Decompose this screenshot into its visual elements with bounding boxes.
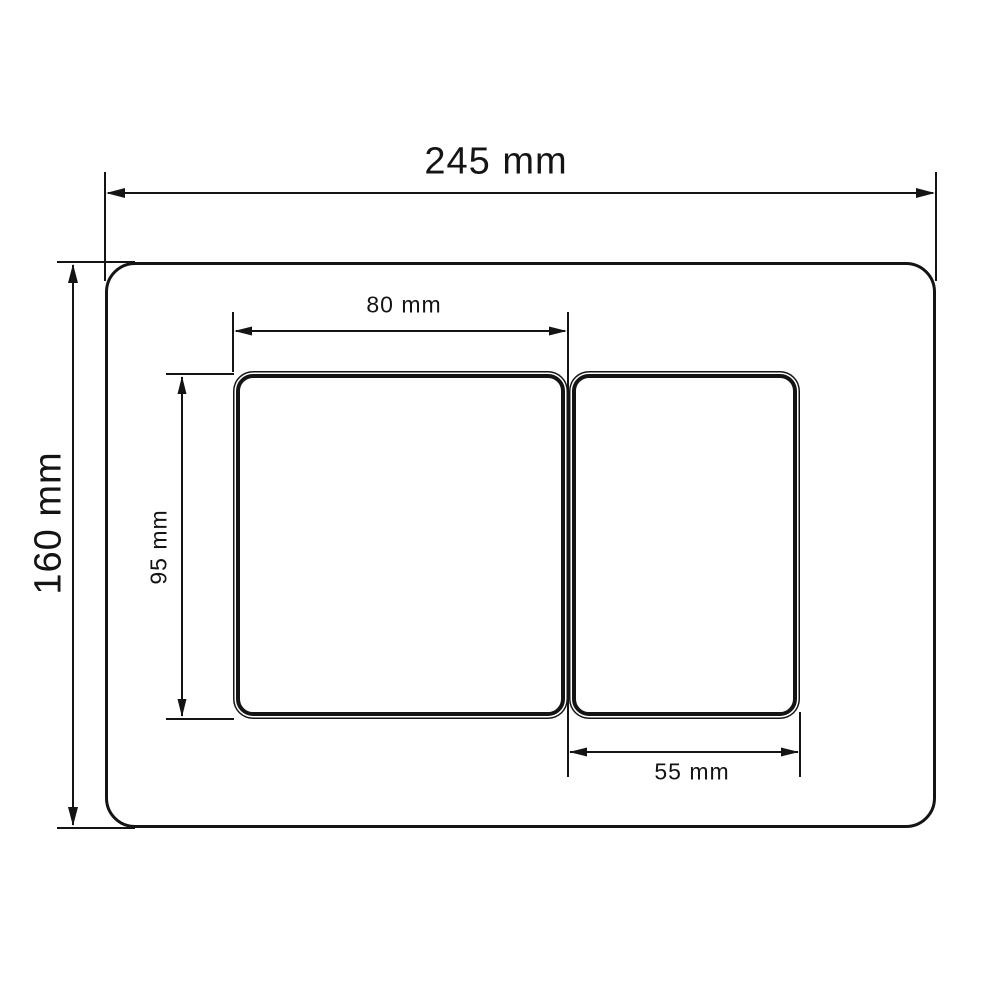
dim-label-small-button-width: 55 mm bbox=[654, 759, 729, 786]
arrowhead-right-icon bbox=[916, 188, 935, 198]
dimension-large-button-height bbox=[166, 374, 234, 719]
arrowhead-right-icon bbox=[781, 748, 799, 757]
arrowhead-left-icon bbox=[106, 188, 125, 198]
dimension-plate-width bbox=[105, 172, 936, 281]
arrowhead-up-icon bbox=[178, 376, 187, 394]
dim-label-plate-height: 160 mm bbox=[28, 451, 71, 594]
small-flush-button bbox=[572, 374, 797, 716]
technical-drawing-canvas: 245 mm 160 mm 80 mm 95 mm 55 mm bbox=[0, 0, 1000, 1000]
dim-label-plate-width: 245 mm bbox=[424, 141, 567, 184]
arrowhead-left-icon bbox=[234, 327, 252, 336]
arrowhead-left-icon bbox=[569, 748, 587, 757]
arrowhead-right-icon bbox=[549, 327, 567, 336]
large-flush-button bbox=[236, 374, 565, 716]
arrowhead-up-icon bbox=[68, 264, 78, 283]
dim-label-large-button-width: 80 mm bbox=[366, 292, 441, 319]
arrowhead-down-icon bbox=[178, 699, 187, 717]
arrowhead-down-icon bbox=[68, 807, 78, 826]
dim-label-large-button-height: 95 mm bbox=[146, 509, 173, 584]
